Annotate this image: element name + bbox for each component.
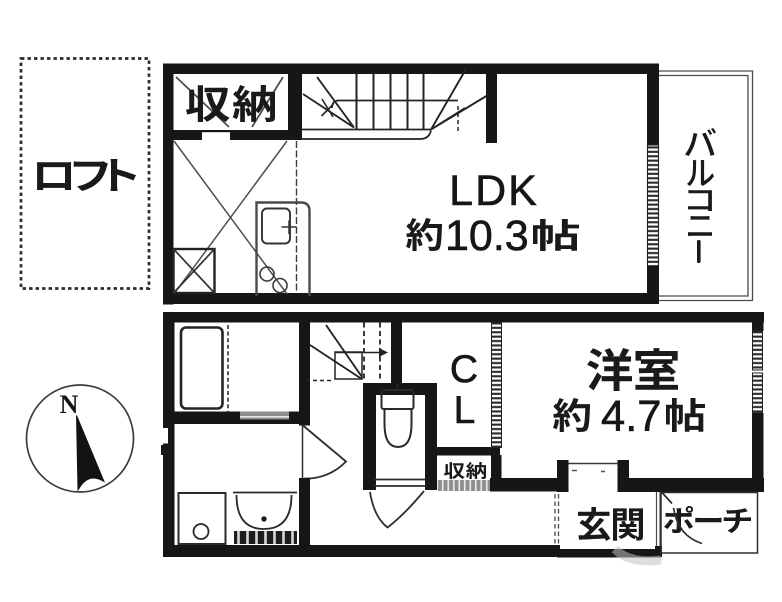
svg-text:LDK: LDK: [449, 167, 539, 215]
svg-text:N: N: [60, 390, 79, 419]
svg-text:10.3: 10.3: [445, 212, 529, 260]
svg-text:L: L: [454, 389, 476, 432]
svg-text:4.7: 4.7: [601, 393, 661, 441]
svg-text:C: C: [450, 348, 478, 391]
